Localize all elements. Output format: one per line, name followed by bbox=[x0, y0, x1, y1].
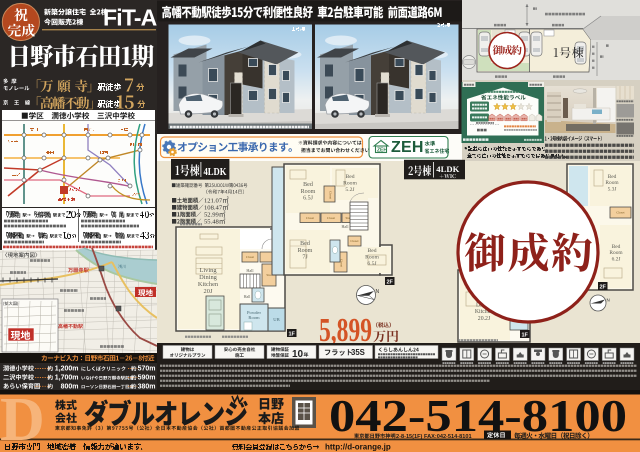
svg-text:1F: 1F bbox=[522, 333, 529, 339]
svg-text:Hall: Hall bbox=[342, 224, 350, 229]
svg-text:5.2J: 5.2J bbox=[345, 187, 355, 193]
svg-text:20.2J: 20.2J bbox=[478, 316, 491, 322]
svg-text:4LDK: 4LDK bbox=[204, 167, 228, 178]
svg-text:Bed: Bed bbox=[300, 241, 310, 247]
svg-text:Closet: Closet bbox=[246, 255, 254, 259]
svg-text:http://d-orange.jp: http://d-orange.jp bbox=[325, 443, 391, 452]
svg-text:Closet: Closet bbox=[329, 191, 333, 199]
svg-text:Closet: Closet bbox=[350, 239, 358, 243]
svg-text:N: N bbox=[607, 298, 610, 303]
svg-text:121.07㎡: 121.07㎡ bbox=[204, 196, 229, 205]
svg-text:Bed: Bed bbox=[345, 174, 354, 180]
svg-text:Bed: Bed bbox=[612, 244, 621, 250]
svg-text:2-8-15(1F) FAX:042-514-8101: 2-8-15(1F) FAX:042-514-8101 bbox=[396, 434, 472, 440]
svg-text:7J: 7J bbox=[302, 255, 308, 261]
svg-text:380m: 380m bbox=[138, 383, 156, 390]
svg-text:35S: 35S bbox=[351, 348, 365, 357]
svg-text:Room: Room bbox=[343, 180, 357, 186]
svg-text:UB: UB bbox=[273, 317, 279, 322]
svg-text:Living: Living bbox=[199, 267, 217, 274]
svg-text:Hall: Hall bbox=[246, 268, 254, 273]
svg-text:1,700m: 1,700m bbox=[55, 375, 79, 382]
svg-text:1F: 1F bbox=[289, 332, 296, 338]
svg-text:Hall: Hall bbox=[244, 295, 251, 299]
svg-text:ZEH: ZEH bbox=[391, 139, 424, 156]
svg-text:2F: 2F bbox=[600, 285, 607, 291]
svg-text:6.5J: 6.5J bbox=[367, 261, 377, 267]
svg-text:570m: 570m bbox=[138, 366, 156, 373]
svg-text:Closet: Closet bbox=[616, 211, 624, 215]
svg-text:FiT-A: FiT-A bbox=[103, 5, 157, 31]
svg-text:Bed: Bed bbox=[303, 182, 313, 188]
svg-text:N: N bbox=[376, 289, 380, 295]
svg-text:4LDK: 4LDK bbox=[436, 164, 459, 174]
svg-text:55.48㎡: 55.48㎡ bbox=[204, 217, 226, 226]
svg-text:Room: Room bbox=[248, 315, 260, 320]
svg-text:590m: 590m bbox=[138, 375, 156, 382]
svg-text:10: 10 bbox=[292, 349, 304, 360]
svg-text:Kitchen: Kitchen bbox=[198, 281, 219, 288]
svg-text:1,200m: 1,200m bbox=[55, 366, 79, 373]
svg-text:6.2J: 6.2J bbox=[612, 256, 621, 262]
svg-text:D: D bbox=[0, 386, 45, 452]
svg-text:Room: Room bbox=[298, 248, 313, 254]
svg-text:5.3J: 5.3J bbox=[608, 186, 617, 192]
svg-text:Stu.: Stu. bbox=[266, 273, 272, 277]
svg-text:ZEH: ZEH bbox=[377, 148, 387, 154]
svg-text:Room: Room bbox=[605, 180, 619, 186]
svg-text:20J: 20J bbox=[204, 288, 213, 295]
svg-text:Room: Room bbox=[365, 254, 379, 260]
svg-text:800m: 800m bbox=[61, 383, 79, 390]
svg-text:6.5J: 6.5J bbox=[303, 196, 314, 202]
svg-text:042-514-8100: 042-514-8100 bbox=[329, 390, 627, 441]
svg-text:52.99㎡: 52.99㎡ bbox=[204, 210, 226, 219]
svg-text:108.47㎡: 108.47㎡ bbox=[204, 203, 229, 212]
svg-text:Bed: Bed bbox=[608, 174, 617, 180]
svg-text:Room: Room bbox=[301, 189, 316, 195]
svg-text:Bed: Bed bbox=[367, 248, 376, 254]
svg-text:Closet: Closet bbox=[306, 216, 314, 220]
svg-text:Dining: Dining bbox=[199, 274, 218, 281]
svg-text:2F: 2F bbox=[387, 280, 394, 286]
svg-text:Room: Room bbox=[609, 250, 623, 256]
svg-text:Closet: Closet bbox=[327, 216, 335, 220]
